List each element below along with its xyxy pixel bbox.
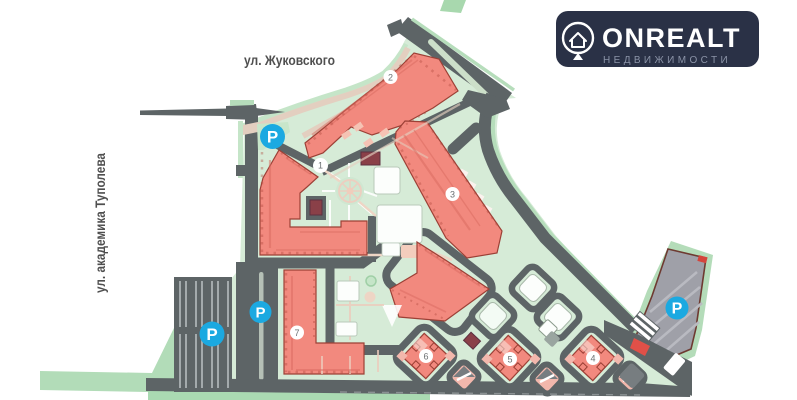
svg-text:ONREALT: ONREALT <box>602 23 741 53</box>
svg-text:1: 1 <box>318 161 323 171</box>
svg-text:2: 2 <box>388 73 393 83</box>
svg-text:ул. Жуковского: ул. Жуковского <box>244 53 335 68</box>
svg-text:P: P <box>206 325 217 344</box>
svg-text:НЕДВИЖИМОСТИ: НЕДВИЖИМОСТИ <box>603 55 731 66</box>
svg-text:6: 6 <box>423 352 428 362</box>
svg-text:P: P <box>267 128 278 147</box>
svg-text:ул. академика Туполева: ул. академика Туполева <box>93 153 108 293</box>
svg-text:5: 5 <box>507 355 512 365</box>
svg-text:3: 3 <box>450 190 455 200</box>
svg-text:4: 4 <box>590 354 595 364</box>
svg-text:7: 7 <box>294 328 299 338</box>
svg-text:P: P <box>672 301 683 318</box>
svg-text:P: P <box>255 305 265 322</box>
